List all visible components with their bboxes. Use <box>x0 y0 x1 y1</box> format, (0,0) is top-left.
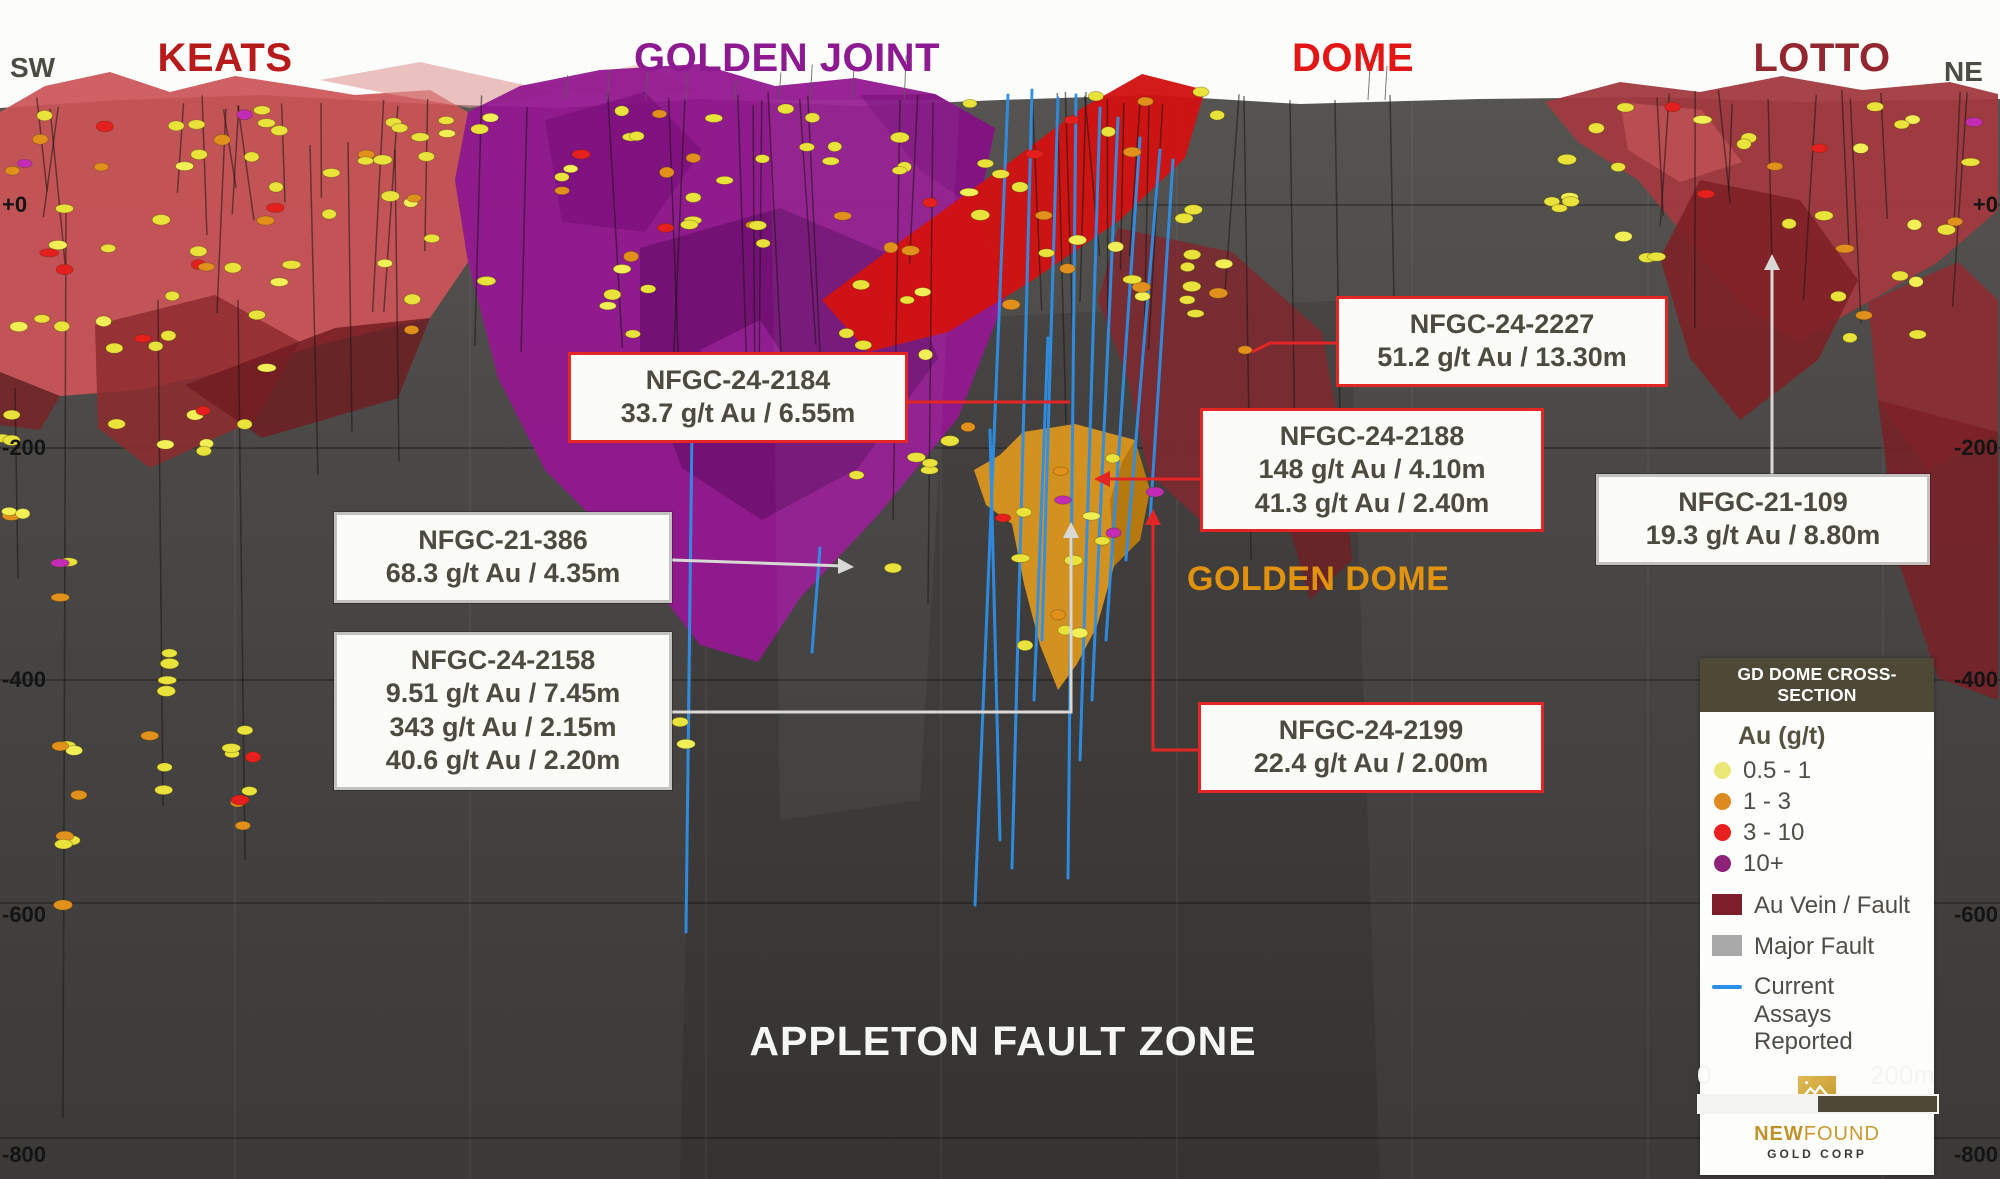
callout-results: 148 g/t Au / 4.10m 41.3 g/t Au / 2.40m <box>1209 453 1535 520</box>
compass-sw: SW <box>10 52 55 84</box>
zone-label-dome: DOME <box>1292 36 1414 81</box>
depth-label-right-0: +0 <box>1973 192 1998 218</box>
callout-nfgc-21-109: NFGC-21-109 19.3 g/t Au / 8.80m <box>1596 474 1930 565</box>
depth-label-right-800: -800 <box>1954 1142 1998 1168</box>
legend-row-current-assays: Current Assays Reported <box>1712 973 1922 1056</box>
depth-label-left-400: -400 <box>2 667 46 693</box>
depth-label-left-800: -800 <box>2 1142 46 1168</box>
callout-results: 9.51 g/t Au / 7.45m 343 g/t Au / 2.15m 4… <box>343 677 663 777</box>
legend-title: GD DOME CROSS-SECTION <box>1700 658 1934 712</box>
au-class-dot <box>1714 824 1731 841</box>
major-fault-swatch <box>1712 935 1742 956</box>
scale-bar <box>1697 1094 1939 1114</box>
callout-hole-id: NFGC-24-2227 <box>1345 308 1659 341</box>
legend-row-au-10plus: 10+ <box>1712 848 1922 879</box>
depth-label-left-0: +0 <box>2 192 27 218</box>
callout-nfgc-24-2227: NFGC-24-2227 51.2 g/t Au / 13.30m <box>1336 296 1668 387</box>
cross-section-figure: SW NE KEATS GOLDEN JOINT DOME LOTTO +0 -… <box>0 0 2000 1179</box>
au-class-dot <box>1714 855 1731 872</box>
callout-nfgc-24-2158: NFGC-24-2158 9.51 g/t Au / 7.45m 343 g/t… <box>334 632 672 790</box>
zone-label-golden-joint: GOLDEN JOINT <box>634 36 940 81</box>
golden-dome-label: GOLDEN DOME <box>1187 560 1449 599</box>
depth-label-right-600: -600 <box>1954 902 1998 928</box>
compass-ne: NE <box>1944 56 1983 88</box>
callout-results: 22.4 g/t Au / 2.00m <box>1207 747 1535 780</box>
callout-hole-id: NFGC-24-2184 <box>577 364 899 397</box>
callout-hole-id: NFGC-24-2188 <box>1209 420 1535 453</box>
zone-label-keats: KEATS <box>157 36 292 81</box>
scale-bar-segment <box>1699 1096 1818 1112</box>
logo-name-light: FOUND <box>1804 1123 1880 1145</box>
legend-row-au-0.5-1: 0.5 - 1 <box>1712 755 1922 786</box>
callout-nfgc-24-2184: NFGC-24-2184 33.7 g/t Au / 6.55m <box>568 352 908 443</box>
legend-au-title: Au (g/t) <box>1738 722 1922 751</box>
scale-end: 200m <box>1870 1060 1935 1091</box>
au-class-dot <box>1714 762 1731 779</box>
callout-nfgc-21-386: NFGC-21-386 68.3 g/t Au / 4.35m <box>334 512 672 603</box>
legend-item-label: Major Fault <box>1754 933 1874 961</box>
depth-label-right-400: -400 <box>1954 667 1998 693</box>
logo-name-bold: NEW <box>1754 1123 1804 1145</box>
legend-item-label: Current Assays Reported <box>1754 973 1904 1056</box>
callout-results: 51.2 g/t Au / 13.30m <box>1345 341 1659 374</box>
au-class-label: 3 - 10 <box>1743 819 1804 847</box>
depth-label-right-200: -200 <box>1954 435 1998 461</box>
legend-row-au-3-10: 3 - 10 <box>1712 817 1922 848</box>
zone-label-lotto: LOTTO <box>1753 36 1890 81</box>
legend-item-label: Au Vein / Fault <box>1754 892 1910 920</box>
callout-hole-id: NFGC-24-2158 <box>343 644 663 677</box>
au-class-label: 1 - 3 <box>1743 788 1791 816</box>
callout-results: 68.3 g/t Au / 4.35m <box>343 557 663 590</box>
depth-label-left-200: -200 <box>2 435 46 461</box>
scale-start: 0 <box>1697 1060 1711 1091</box>
scale-bar-labels: 0 200m <box>1697 1060 1935 1091</box>
assay-line-swatch <box>1712 985 1742 989</box>
callout-hole-id: NFGC-21-109 <box>1605 486 1921 519</box>
au-vein-swatch <box>1712 894 1742 915</box>
au-class-label: 0.5 - 1 <box>1743 757 1811 785</box>
callout-results: 33.7 g/t Au / 6.55m <box>577 397 899 430</box>
au-class-label: 10+ <box>1743 850 1784 878</box>
appleton-fault-zone-label: APPLETON FAULT ZONE <box>749 1018 1256 1065</box>
legend-row-au-vein-fault: Au Vein / Fault <box>1712 892 1922 920</box>
callout-hole-id: NFGC-24-2199 <box>1207 714 1535 747</box>
legend-row-au-1-3: 1 - 3 <box>1712 786 1922 817</box>
callout-nfgc-24-2188: NFGC-24-2188 148 g/t Au / 4.10m 41.3 g/t… <box>1200 408 1544 532</box>
au-class-dot <box>1714 793 1731 810</box>
callout-results: 19.3 g/t Au / 8.80m <box>1605 519 1921 552</box>
depth-label-left-600: -600 <box>2 902 46 928</box>
callout-hole-id: NFGC-21-386 <box>343 524 663 557</box>
scale-bar-segment <box>1818 1096 1937 1112</box>
logo-subtitle: GOLD CORP <box>1712 1147 1922 1161</box>
callout-nfgc-24-2199: NFGC-24-2199 22.4 g/t Au / 2.00m <box>1198 702 1544 793</box>
legend-row-major-fault: Major Fault <box>1712 933 1922 961</box>
